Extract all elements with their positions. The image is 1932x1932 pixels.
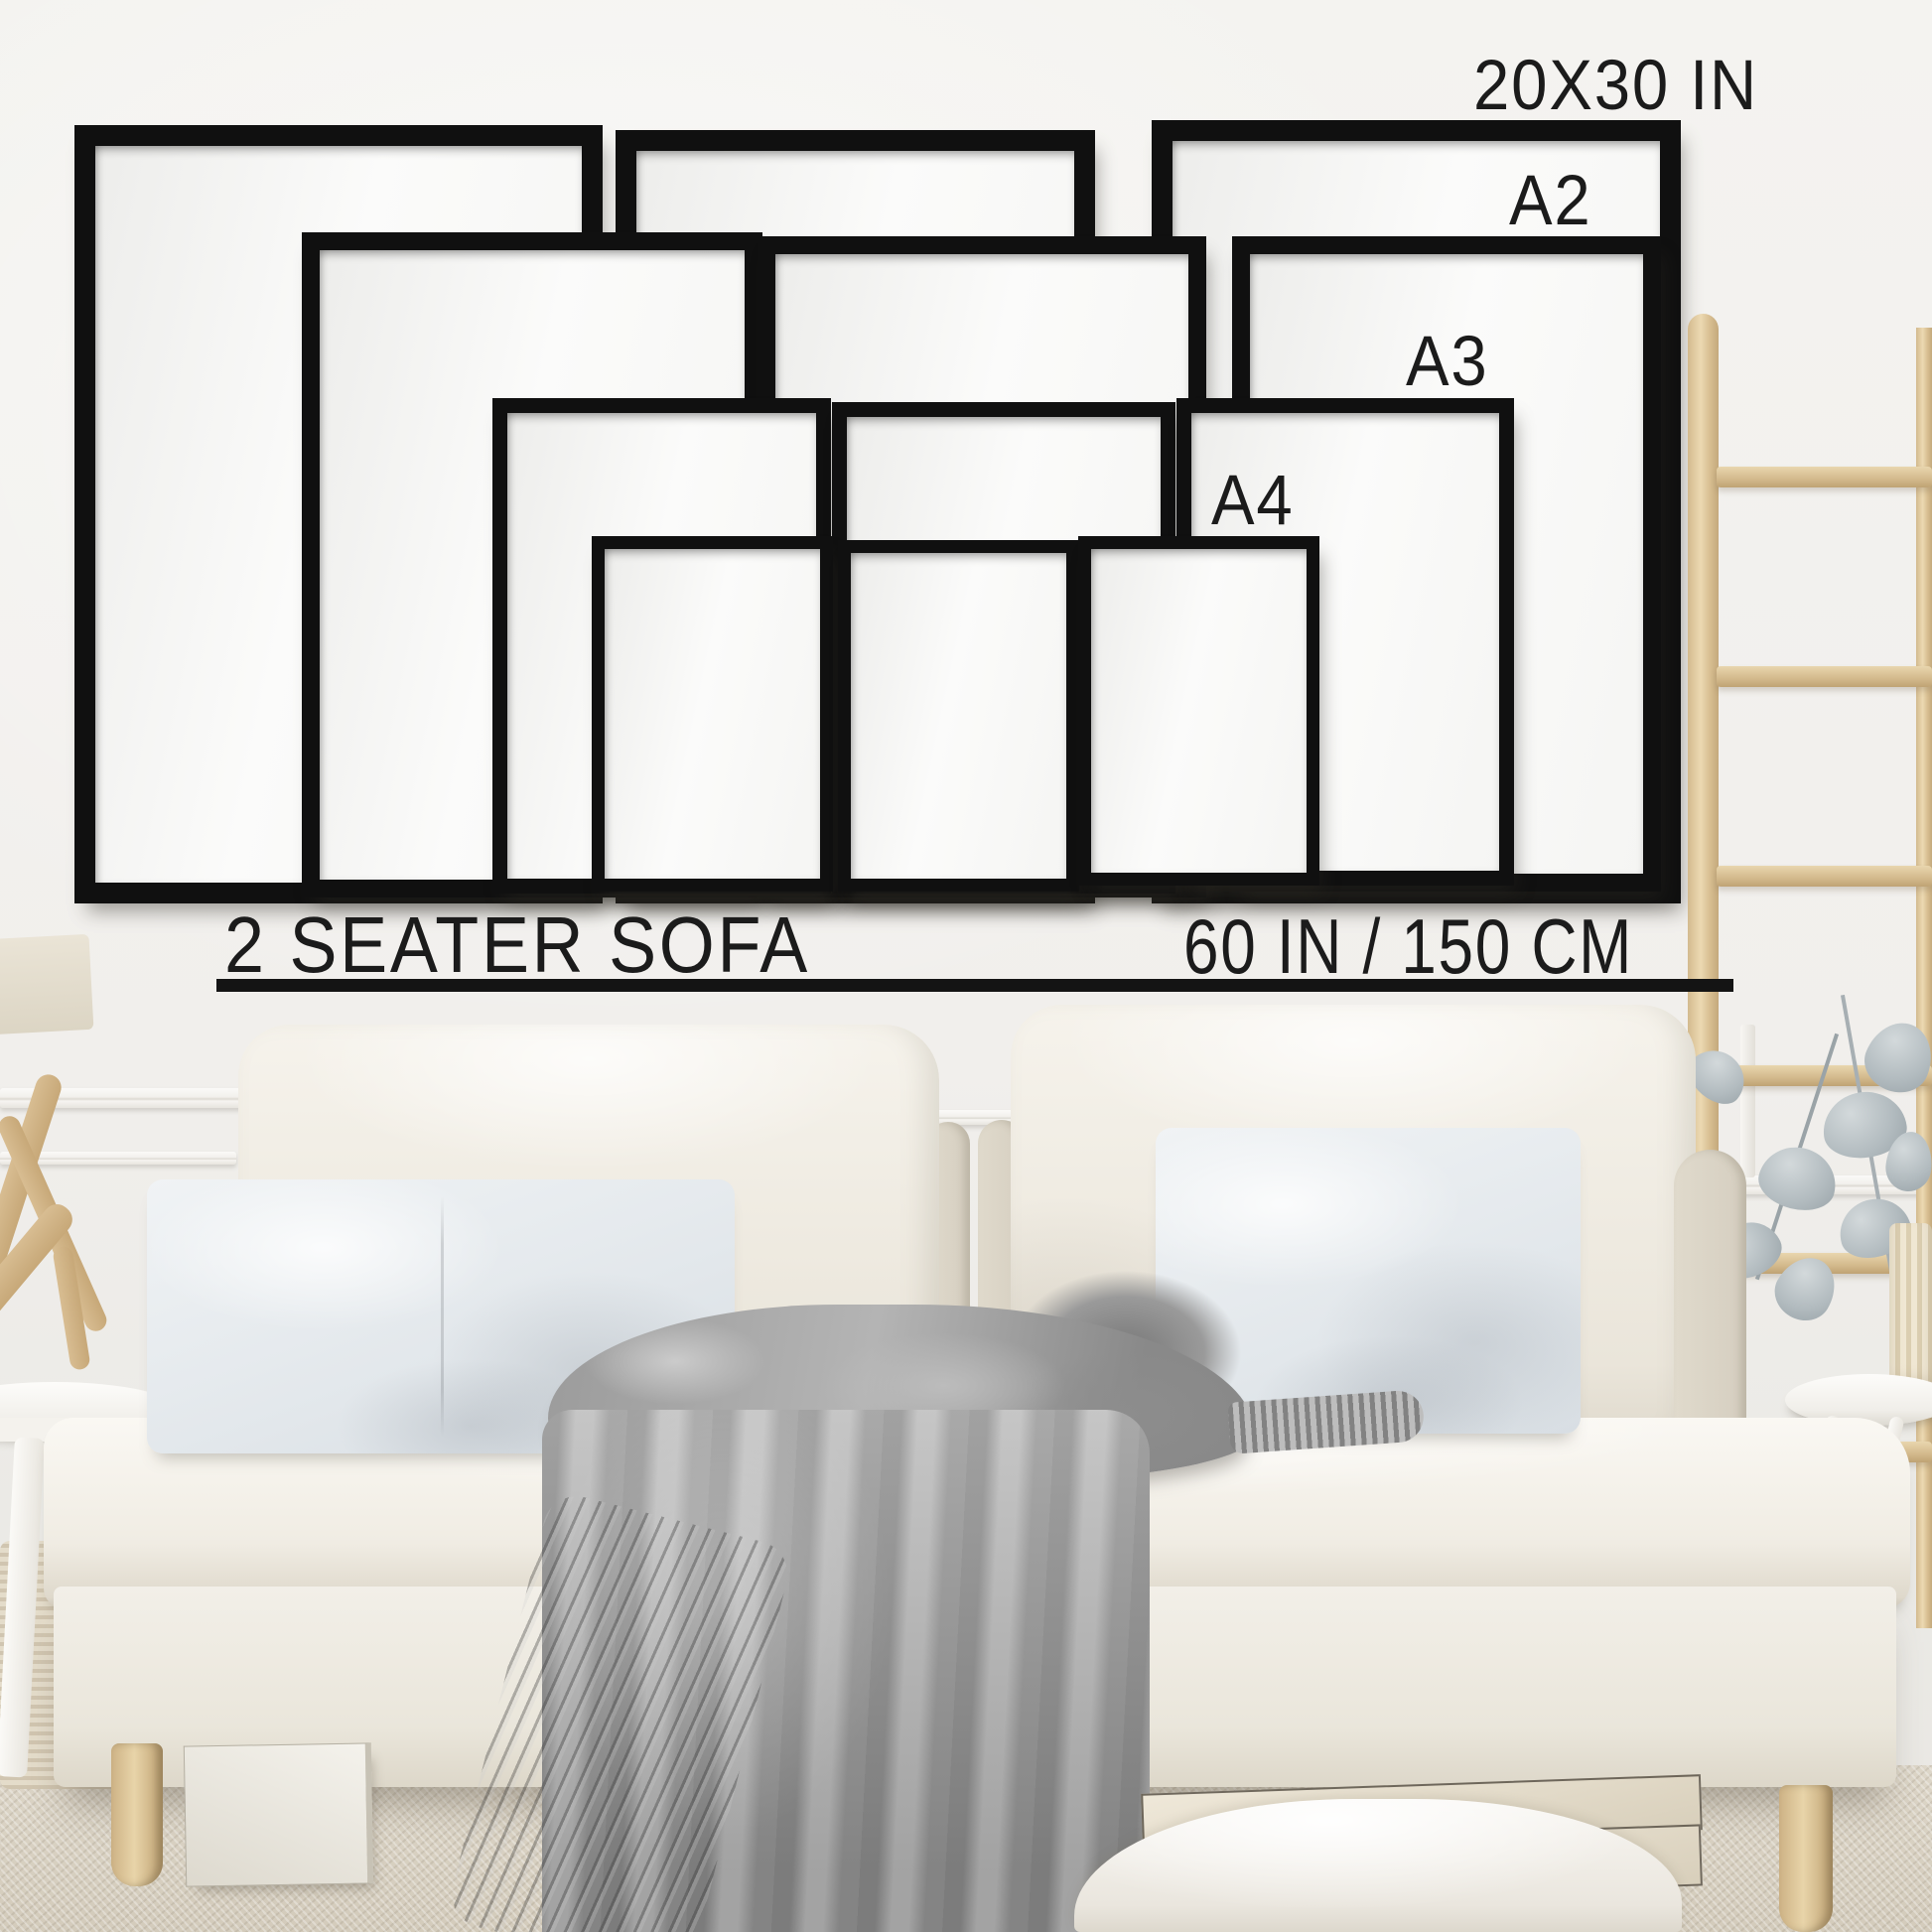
size-label-a2: A2: [1509, 161, 1592, 241]
ladder-rung: [1717, 666, 1932, 687]
ladder-rung: [1717, 467, 1932, 487]
wainscot-molding-right-vertical: [1740, 1025, 1755, 1177]
frame-a4-right: [1078, 536, 1319, 886]
size-guide-scene: 20X30 IN A2 A3 A4 2 SEATER SOFA 60 IN / …: [0, 0, 1932, 1932]
sofa-label: 2 SEATER SOFA: [224, 899, 810, 991]
storage-box-left: [184, 1742, 373, 1886]
sofa-leg-left: [111, 1743, 163, 1886]
sofa-width-underline: [216, 979, 1733, 992]
ladder-rung: [1717, 866, 1932, 887]
frame-a4-center: [838, 540, 1079, 892]
table-lamp-shade: [0, 934, 93, 1035]
size-label-a4: A4: [1211, 461, 1295, 541]
size-label-a3: A3: [1406, 322, 1489, 402]
frame-a4-left: [592, 536, 833, 892]
size-label-20x30: 20X30 IN: [1473, 46, 1758, 126]
ladder-right-rail: [1916, 328, 1932, 1628]
sofa-side-bolster-right: [1674, 1150, 1746, 1448]
sofa-leg-right: [1779, 1785, 1833, 1932]
ribbed-vase: [1889, 1223, 1932, 1390]
